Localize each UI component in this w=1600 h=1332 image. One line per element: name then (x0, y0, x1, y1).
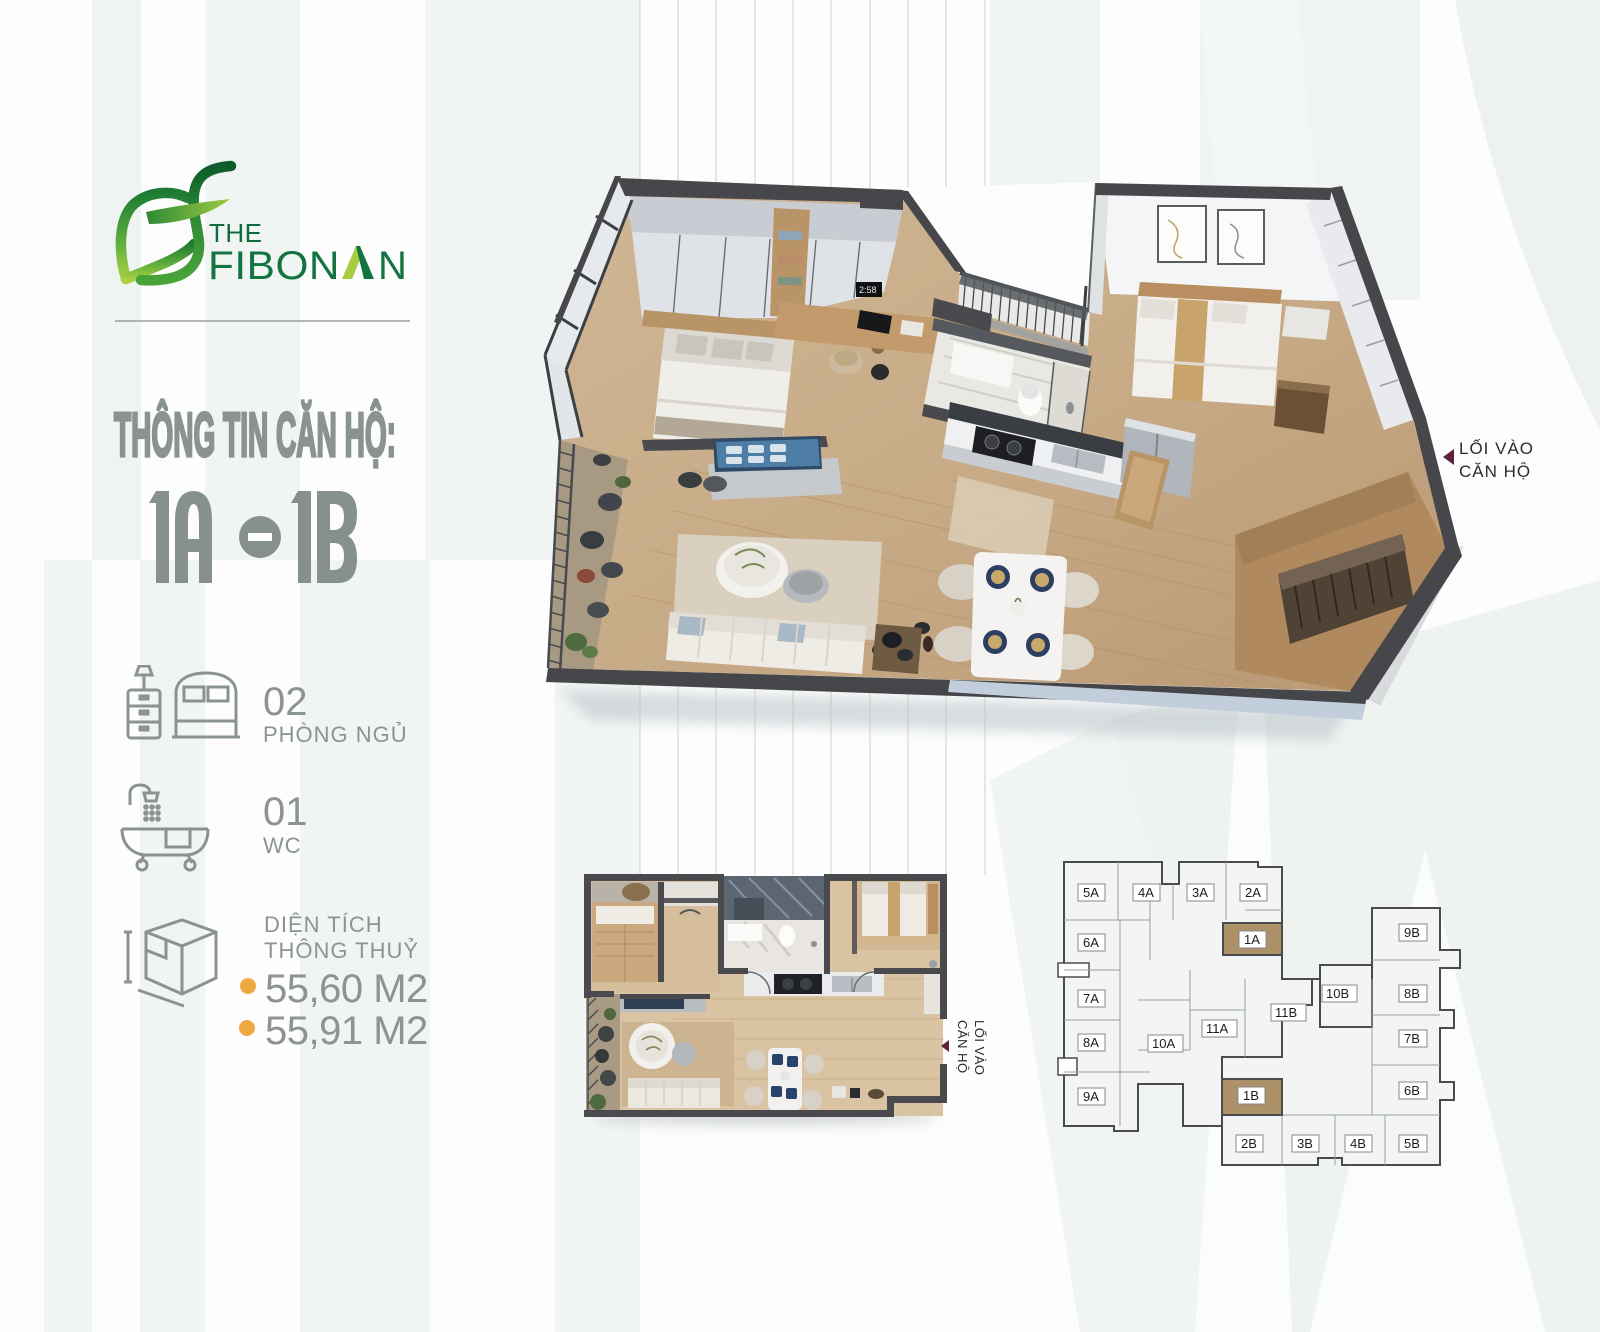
svg-text:2A: 2A (1245, 885, 1261, 900)
svg-text:1A: 1A (1244, 932, 1260, 947)
svg-text:FIBON: FIBON (208, 244, 340, 288)
svg-text:8A: 8A (1083, 1035, 1099, 1050)
svg-text:N: N (378, 244, 407, 288)
svg-text:THÔNG TIN CĂN HỘ:: THÔNG TIN CĂN HỘ: (114, 400, 396, 470)
svg-text:4B: 4B (1350, 1136, 1366, 1151)
svg-text:4A: 4A (1138, 885, 1154, 900)
svg-text:3A: 3A (1192, 885, 1208, 900)
svg-text:6A: 6A (1083, 935, 1099, 950)
svg-text:10B: 10B (1326, 986, 1349, 1001)
svg-text:5A: 5A (1083, 885, 1099, 900)
svg-text:2B: 2B (1241, 1136, 1257, 1151)
svg-text:9A: 9A (1083, 1089, 1099, 1104)
svg-text:7A: 7A (1083, 991, 1099, 1006)
svg-text:7B: 7B (1404, 1031, 1420, 1046)
svg-text:5B: 5B (1404, 1136, 1420, 1151)
svg-text:2:58: 2:58 (859, 285, 877, 295)
svg-text:1B: 1B (1243, 1088, 1259, 1103)
svg-text:11A: 11A (1206, 1021, 1228, 1036)
svg-text:11B: 11B (1275, 1005, 1297, 1020)
svg-text:8B: 8B (1404, 986, 1420, 1001)
svg-text:3B: 3B (1297, 1136, 1313, 1151)
svg-text:10A: 10A (1152, 1036, 1175, 1051)
svg-text:9B: 9B (1404, 925, 1420, 940)
svg-text:6B: 6B (1404, 1083, 1420, 1098)
